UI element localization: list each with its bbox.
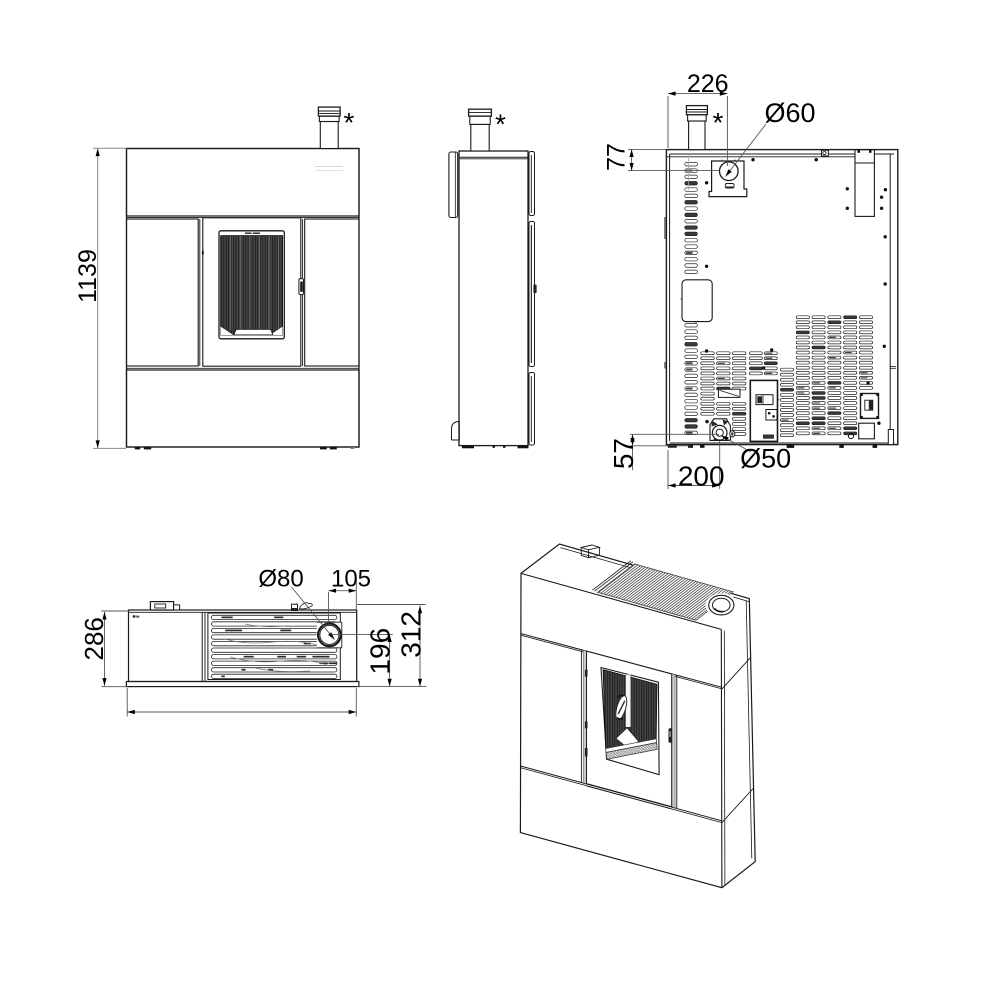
svg-text:Ø80: Ø80: [258, 565, 303, 592]
svg-text:105: 105: [331, 566, 371, 593]
svg-text:Ø60: Ø60: [764, 98, 815, 128]
svg-text:*: *: [495, 109, 506, 140]
svg-text:*: *: [713, 107, 724, 138]
svg-text:1139: 1139: [74, 249, 102, 303]
svg-text:57: 57: [608, 438, 639, 469]
svg-text:312: 312: [396, 611, 427, 658]
svg-text:226: 226: [687, 70, 729, 98]
svg-text:*: *: [344, 107, 355, 138]
svg-text:200: 200: [678, 460, 725, 491]
svg-text:196: 196: [364, 628, 395, 675]
svg-text:286: 286: [79, 617, 109, 660]
svg-text:Ø50: Ø50: [740, 443, 791, 473]
svg-text:77: 77: [603, 143, 631, 171]
